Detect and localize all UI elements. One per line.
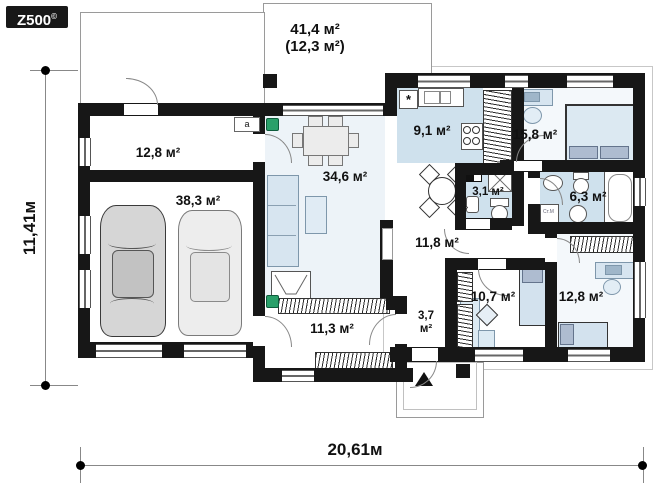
wall-segment <box>253 368 413 382</box>
dim-dot <box>41 381 50 390</box>
room-label-wardrobe: 11,3 м² <box>294 322 370 337</box>
logo-text: Z500 <box>17 12 51 29</box>
washing-machine-label: Ст.М <box>540 209 557 215</box>
wall-segment <box>445 258 457 362</box>
dim-width-label: 20,61м <box>280 440 430 460</box>
boiler-label: а <box>244 119 249 129</box>
terrace-area-secondary: (12,3 м²) <box>266 39 364 56</box>
sofa <box>267 175 299 267</box>
window <box>282 370 314 382</box>
window <box>567 75 613 88</box>
door-gap <box>395 314 407 344</box>
door-gap <box>253 316 265 346</box>
sofa-seam <box>268 235 296 236</box>
window <box>475 349 523 362</box>
wardrobe-closet <box>278 298 390 314</box>
fridge: * <box>399 90 418 109</box>
room-label-wc: 3,1 м² <box>463 186 513 199</box>
garage-door <box>184 344 246 358</box>
room-label-bedroom-main: 15,8 м² <box>497 128 573 143</box>
pillow <box>600 146 629 159</box>
door-gap <box>466 219 490 229</box>
door-gap <box>124 104 158 115</box>
laptop <box>605 265 622 275</box>
wall-segment <box>512 163 524 226</box>
wardrobe-closet <box>457 304 473 348</box>
dim-dot <box>41 66 50 75</box>
wardrobe-closet <box>570 236 634 253</box>
room-label-kitchen: 9,1 м² <box>398 124 466 139</box>
laptop <box>524 92 540 102</box>
garage-door <box>96 344 162 358</box>
corner-desk <box>478 330 495 348</box>
dining-chair <box>348 133 359 148</box>
door-gap <box>253 134 265 162</box>
window <box>79 216 91 254</box>
chair <box>523 107 542 124</box>
sofa-seam <box>268 205 296 206</box>
burner-icon <box>472 137 480 145</box>
pillow <box>569 146 598 159</box>
wall-segment <box>78 103 265 116</box>
pillow <box>522 269 543 283</box>
terrace-window <box>283 105 383 116</box>
car-roof <box>112 250 154 298</box>
wall-segment <box>78 170 253 182</box>
wall-segment <box>386 296 407 310</box>
z500-logo: Z500© <box>6 6 68 28</box>
door-gap <box>528 178 540 204</box>
window <box>505 75 528 88</box>
terrace-area: 41,4 м² <box>266 22 364 39</box>
coffee-table <box>305 196 327 234</box>
pillow <box>560 324 574 345</box>
wall-segment <box>528 222 645 234</box>
room-label-terrace: 41,4 м² (12,3 м²) <box>266 22 364 55</box>
pass-through-niche <box>382 228 393 260</box>
terrace-column <box>263 74 277 88</box>
porch-column <box>456 364 470 378</box>
car-rear-window <box>110 298 154 309</box>
window <box>79 138 91 166</box>
fireplace-flue-icon <box>272 272 310 298</box>
dim-dot <box>76 461 85 470</box>
logo-copyright: © <box>51 12 57 21</box>
fridge-symbol: * <box>406 92 411 107</box>
car-roof <box>190 252 230 302</box>
burner-icon <box>472 126 480 134</box>
window <box>79 270 91 308</box>
pedestal-sink <box>569 205 587 223</box>
vestibule-area-line1: 3,7 <box>407 310 445 323</box>
wall-segment <box>633 73 645 362</box>
dim-tick <box>30 385 78 386</box>
dining-chair <box>328 155 343 166</box>
dim-height-label: 11,41м <box>20 168 40 288</box>
dim-line-horizontal <box>80 465 643 466</box>
kitchen-sink <box>440 91 451 104</box>
marker-green <box>266 295 279 308</box>
door-swing <box>265 316 292 347</box>
dining-table <box>303 126 349 156</box>
door-gap <box>412 348 438 361</box>
vestibule-area-line2: м² <box>407 323 445 336</box>
dining-chair <box>308 155 323 166</box>
kitchen-sink <box>424 91 440 104</box>
window <box>418 75 470 88</box>
window <box>634 178 646 206</box>
window <box>634 262 646 318</box>
car-windshield <box>186 240 232 251</box>
room-label-vestibule: 3,7 м² <box>407 310 445 335</box>
window <box>568 349 610 362</box>
room-label-living: 34,6 м² <box>305 170 385 185</box>
dim-line-vertical <box>45 70 46 385</box>
room-label-bathroom: 6,3 м² <box>553 190 623 205</box>
dining-chair <box>292 133 303 148</box>
door-swing <box>369 314 396 345</box>
dim-dot <box>638 461 647 470</box>
door-gap <box>514 161 542 171</box>
room-label-utility: 12,8 м² <box>118 146 198 161</box>
dim-tick <box>30 70 78 71</box>
room-label-hall: 11,8 м² <box>400 236 474 251</box>
marker-green <box>266 118 279 131</box>
boiler: а <box>234 117 260 132</box>
door-gap <box>545 238 557 262</box>
car-windshield <box>108 238 156 249</box>
driveway <box>80 12 265 105</box>
room-label-bedroom-left: 10,7 м² <box>455 290 531 305</box>
room-label-bedroom-right: 12,8 м² <box>543 290 619 305</box>
round-table <box>428 177 456 205</box>
room-label-garage: 38,3 м² <box>158 194 238 209</box>
door-gap <box>478 259 506 269</box>
floor-plan: Z500© 11,41м 20,61м <box>0 0 655 499</box>
